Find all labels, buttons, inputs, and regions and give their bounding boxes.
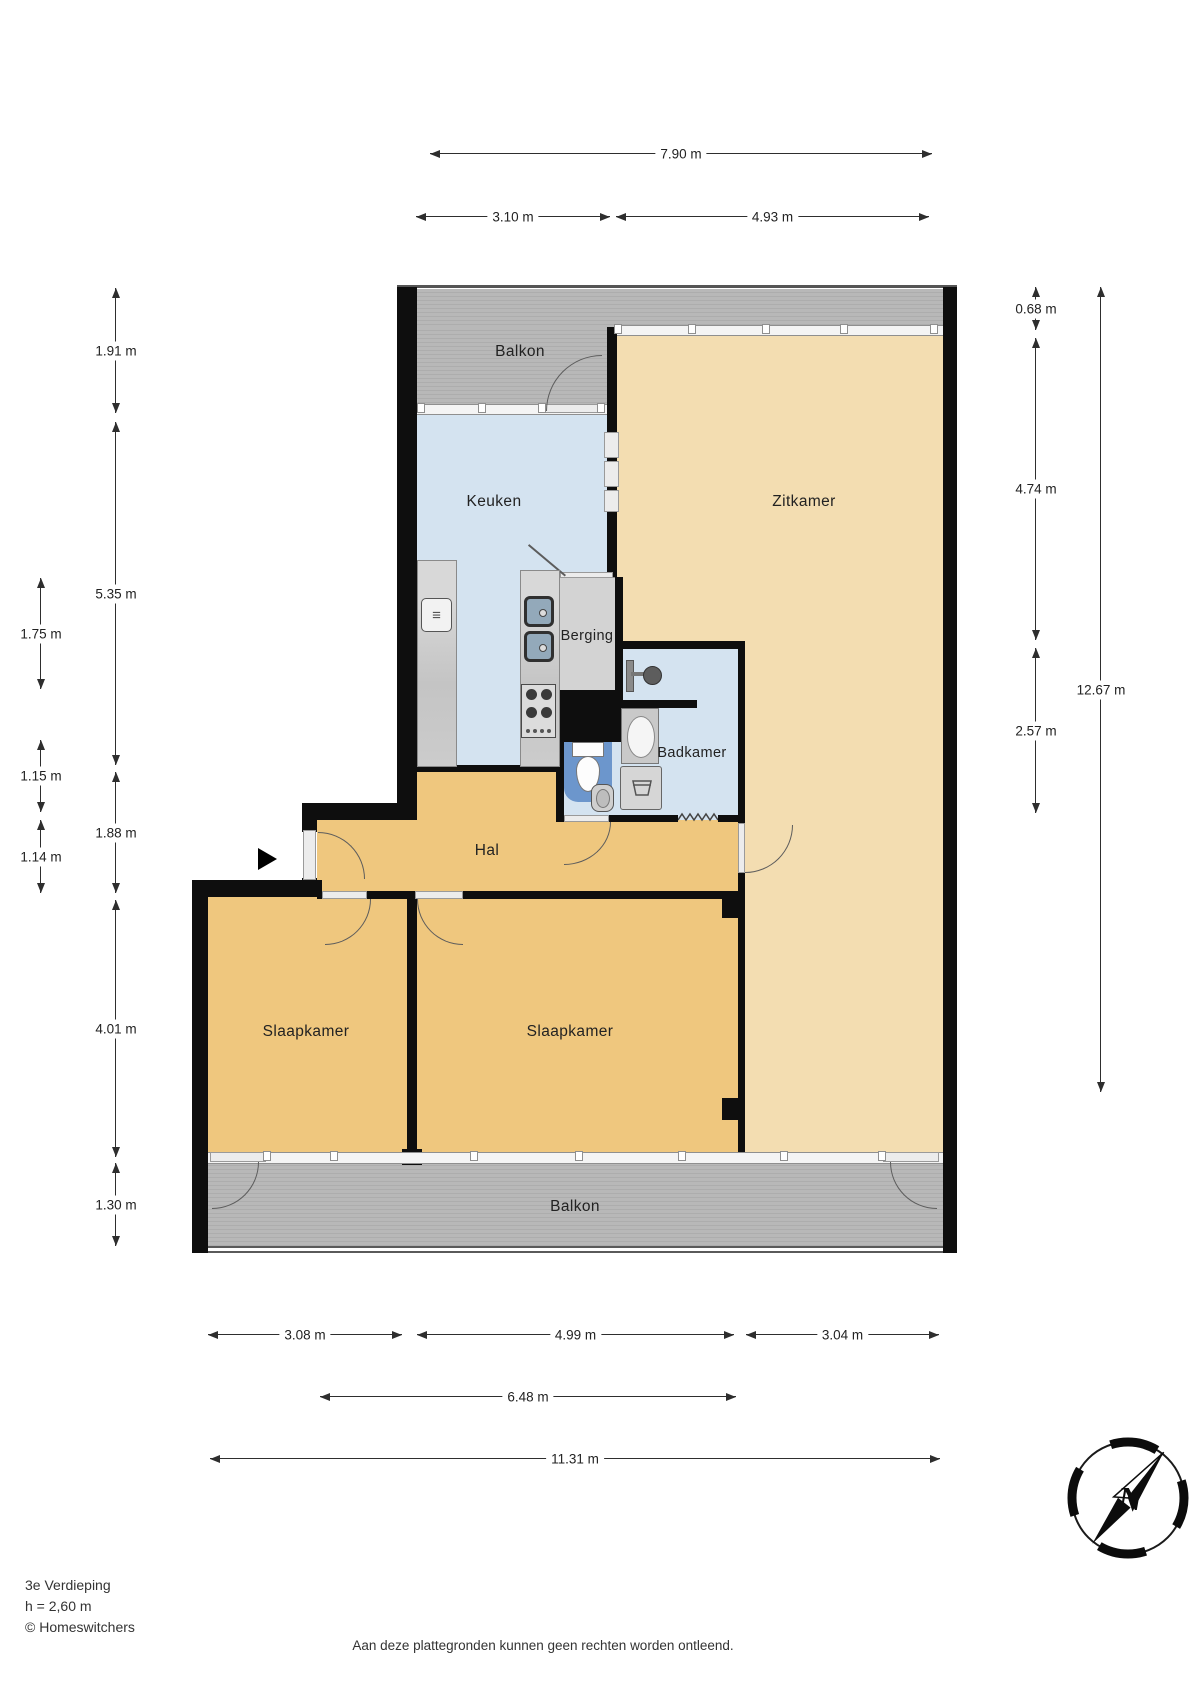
dim-label: 1.14 m — [16, 847, 65, 866]
ceiling-height: h = 2,60 m — [25, 1596, 135, 1617]
wall-toilet-bottom-end2 — [609, 815, 615, 822]
dim-top-310: 3.10 m — [416, 216, 610, 217]
dim-label: 1.30 m — [91, 1195, 140, 1214]
window-mullion — [417, 403, 425, 413]
wall-toilet-bottom-ends — [556, 815, 564, 822]
window-mullion — [478, 403, 486, 413]
wall-stub-upper — [722, 897, 739, 918]
front-door-frame — [303, 830, 316, 880]
dim-bottom-304: 3.04 m — [746, 1334, 939, 1335]
wall-left-kitchen — [397, 287, 417, 820]
room-zitkamer-upper — [617, 333, 943, 641]
toilet-tank — [572, 742, 604, 757]
arrowhead — [1032, 338, 1040, 348]
dim-label: 5.35 m — [91, 584, 140, 603]
arrowhead — [1032, 648, 1040, 658]
sink-icon — [524, 596, 554, 627]
sink-icon — [524, 631, 554, 662]
arrowhead — [112, 1163, 120, 1173]
compass-north-label: N — [1117, 1481, 1144, 1518]
disclaimer-text: Aan deze plattegronden kunnen geen recht… — [210, 1638, 876, 1653]
oven-icon: ≡ — [421, 598, 452, 632]
shower-bar — [626, 660, 634, 692]
washing-machine-icon — [620, 766, 662, 810]
sink-drain — [539, 644, 547, 652]
arrowhead — [210, 1455, 220, 1463]
dim-left-outer-115: 1.15 m — [40, 740, 41, 812]
dim-right-1267: 12.67 m — [1100, 287, 1101, 1092]
arrowhead — [1032, 630, 1040, 640]
arrowhead — [37, 883, 45, 893]
burner — [541, 689, 552, 700]
arrowhead — [112, 772, 120, 782]
arrowhead — [416, 213, 426, 221]
wall-hal-bottom-c — [463, 891, 745, 899]
wall-stub-lower — [722, 1098, 739, 1120]
window-mullion — [840, 324, 848, 334]
arrowhead — [1032, 803, 1040, 813]
boiler-icon — [591, 784, 614, 812]
burner — [541, 707, 552, 718]
door-frame-berging — [560, 572, 613, 578]
dim-label: 12.67 m — [1073, 680, 1130, 699]
dim-bottom-1131: 11.31 m — [210, 1458, 940, 1459]
dim-left-130: 1.30 m — [115, 1163, 116, 1246]
dim-left-191: 1.91 m — [115, 288, 116, 413]
room-label-berging: Berging — [561, 628, 614, 644]
dim-label: 1.88 m — [91, 823, 140, 842]
wall-badkamer-top — [615, 641, 745, 649]
room-label-balkon-top: Balkon — [495, 343, 545, 361]
wall-slaapkamerL-top — [192, 880, 322, 897]
window-mullion — [762, 324, 770, 334]
door-frame-slaapkamerL — [322, 891, 367, 899]
dim-label: 6.48 m — [502, 1390, 553, 1405]
arrowhead — [208, 1331, 218, 1339]
window-zitkamer-top — [617, 325, 943, 336]
dim-label: 2.57 m — [1011, 721, 1060, 740]
stove-knob — [547, 729, 551, 733]
stove-knob — [540, 729, 544, 733]
window-mullion — [930, 324, 938, 334]
arrowhead — [112, 755, 120, 765]
dim-label: 0.68 m — [1011, 299, 1060, 318]
arrowhead — [112, 883, 120, 893]
dim-label: 3.04 m — [817, 1328, 868, 1343]
dim-right-257: 2.57 m — [1035, 648, 1036, 813]
arrowhead — [37, 802, 45, 812]
room-hal-main — [317, 820, 745, 898]
copyright: © Homeswitchers — [25, 1617, 135, 1638]
stove-icon — [521, 684, 556, 738]
wall-badkamer-bottom-right — [718, 815, 745, 822]
door-frame-zitkamer-balkon — [883, 1152, 939, 1162]
room-label-hal: Hal — [475, 842, 499, 860]
dim-left-535: 5.35 m — [115, 422, 116, 765]
footer-info: 3e Verdieping h = 2,60 m © Homeswitchers — [25, 1575, 135, 1638]
room-label-badkamer: Badkamer — [657, 745, 726, 761]
dim-label: 1.91 m — [91, 341, 140, 360]
dim-right-474: 4.74 m — [1035, 338, 1036, 640]
door-frame-hal-zitkamer — [738, 823, 745, 873]
dim-label: 1.15 m — [16, 767, 65, 786]
sink-drain — [539, 609, 547, 617]
hatch-keuken-zitkamer — [604, 432, 619, 458]
dim-label: 4.93 m — [747, 210, 798, 225]
arrowhead — [417, 1331, 427, 1339]
dim-label: 11.31 m — [546, 1452, 604, 1467]
arrowhead — [112, 403, 120, 413]
wall-berging-right — [615, 577, 623, 692]
arrowhead — [919, 213, 929, 221]
wall-badkamer-bottom-left — [615, 815, 678, 822]
room-label-balkon-bottom: Balkon — [550, 1198, 600, 1216]
arrowhead — [929, 1331, 939, 1339]
laundry-tub-icon — [632, 780, 652, 796]
dim-left-188: 1.88 m — [115, 772, 116, 893]
window-mullion — [878, 1151, 886, 1161]
compass-rose-icon: N — [1062, 1432, 1194, 1564]
room-hal-upper — [397, 772, 556, 820]
dim-label: 3.08 m — [279, 1328, 330, 1343]
arrowhead — [430, 150, 440, 158]
arrowhead — [37, 578, 45, 588]
dim-top-790: 7.90 m — [430, 153, 932, 154]
burner — [526, 689, 537, 700]
stove-knob — [526, 729, 530, 733]
balcony-bottom-rail — [208, 1246, 943, 1253]
dim-bottom-499: 4.99 m — [417, 1334, 734, 1335]
arrowhead — [1032, 320, 1040, 330]
window-mullion — [688, 324, 696, 334]
entrance-arrow-icon — [258, 848, 277, 870]
wall-shaft-block — [556, 690, 623, 742]
wall-slaapkamer-divider — [407, 898, 417, 1157]
burner — [526, 707, 537, 718]
shower-head — [643, 666, 662, 685]
arrowhead — [1097, 287, 1105, 297]
dim-top-493: 4.93 m — [616, 216, 929, 217]
wall-left-outer — [192, 880, 208, 1253]
dim-label: 4.74 m — [1011, 480, 1060, 499]
dim-left-outer-175: 1.75 m — [40, 578, 41, 689]
arrowhead — [320, 1393, 330, 1401]
arrowhead — [112, 288, 120, 298]
zigzag-threshold-icon — [678, 811, 718, 823]
door-frame-slaapkamer-balkon — [210, 1152, 266, 1162]
arrowhead — [37, 740, 45, 750]
arrowhead — [930, 1455, 940, 1463]
dim-label: 4.99 m — [550, 1328, 601, 1343]
hatch-keuken-zitkamer — [604, 490, 619, 512]
window-mullion — [470, 1151, 478, 1161]
room-balkon-top — [417, 289, 943, 327]
boiler-inner — [596, 789, 610, 808]
shower-icon — [623, 658, 659, 692]
wall-badkamer-right — [738, 641, 745, 1157]
dim-label: 7.90 m — [655, 147, 706, 162]
arrowhead — [112, 422, 120, 432]
window-mullion — [614, 324, 622, 334]
floor-name: 3e Verdieping — [25, 1575, 135, 1596]
dim-left-outer-114: 1.14 m — [40, 820, 41, 893]
arrowhead — [112, 1236, 120, 1246]
dim-label: 3.10 m — [487, 210, 538, 225]
washbasin-bowl — [627, 716, 655, 758]
arrowhead — [112, 900, 120, 910]
dim-label: 1.75 m — [16, 624, 65, 643]
dim-right-068: 0.68 m — [1035, 287, 1036, 330]
washbasin-icon — [621, 708, 659, 764]
arrowhead — [600, 213, 610, 221]
door-frame-toilet — [564, 815, 609, 822]
arrowhead — [616, 213, 626, 221]
arrowhead — [746, 1331, 756, 1339]
arrowhead — [392, 1331, 402, 1339]
window-mullion — [575, 1151, 583, 1161]
floorplan-page: ≡ Balkon Keuken Zitkamer Berging Badkame… — [0, 0, 1200, 1696]
arrowhead — [724, 1331, 734, 1339]
wall-badkamer-stub — [623, 700, 697, 708]
window-mullion — [780, 1151, 788, 1161]
window-mullion — [330, 1151, 338, 1161]
window-mullion — [678, 1151, 686, 1161]
hatch-keuken-zitkamer — [604, 461, 619, 487]
door-frame-slaapkamerR — [415, 891, 463, 899]
kitchen-counter-left — [417, 560, 457, 767]
arrowhead — [112, 1147, 120, 1157]
arrowhead — [1097, 1082, 1105, 1092]
dim-bottom-308: 3.08 m — [208, 1334, 402, 1335]
room-zitkamer-lower — [745, 641, 943, 1157]
arrowhead — [922, 150, 932, 158]
arrowhead — [37, 820, 45, 830]
window-mullion — [538, 403, 546, 413]
room-label-keuken: Keuken — [467, 493, 522, 511]
dim-left-401: 4.01 m — [115, 900, 116, 1157]
room-label-slaapkamer-left: Slaapkamer — [263, 1023, 350, 1041]
arrowhead — [1032, 287, 1040, 297]
wall-right-outer — [943, 287, 957, 1253]
room-label-slaapkamer-right: Slaapkamer — [527, 1023, 614, 1041]
arrowhead — [726, 1393, 736, 1401]
arrowhead — [37, 679, 45, 689]
dim-label: 4.01 m — [91, 1019, 140, 1038]
stove-knob — [533, 729, 537, 733]
window-mullion — [263, 1151, 271, 1161]
balcony-top-rail — [397, 285, 957, 288]
dim-bottom-648: 6.48 m — [320, 1396, 736, 1397]
room-label-zitkamer: Zitkamer — [772, 493, 835, 511]
